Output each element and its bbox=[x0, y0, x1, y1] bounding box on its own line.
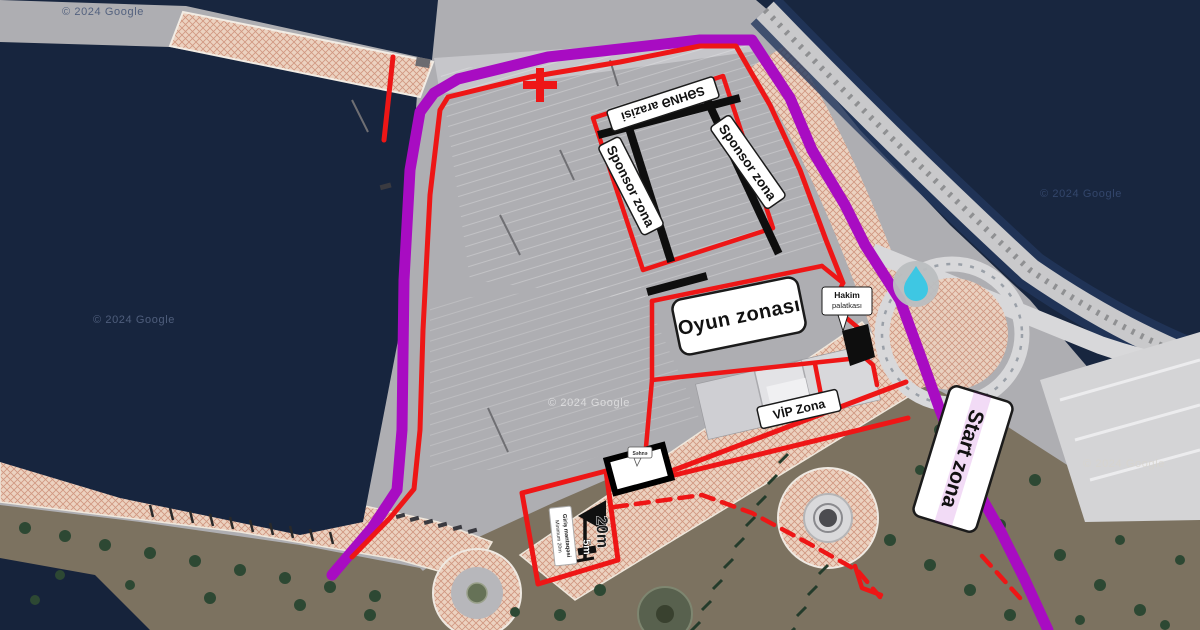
satellite-map: © 2024 Google © 2024 Google © 2024 Googl… bbox=[0, 0, 1200, 630]
google-watermark: © 2024 Google bbox=[1040, 188, 1122, 200]
stage-callout-text: Səhnə bbox=[632, 451, 647, 457]
water-area bbox=[0, 42, 417, 535]
google-watermark: © 2024 Google bbox=[1083, 458, 1165, 470]
google-watermark: © 2024 Google bbox=[62, 6, 144, 18]
event-layout-map: © 2024 Google © 2024 Google © 2024 Googl… bbox=[0, 0, 1200, 630]
garden-circle-center bbox=[656, 605, 674, 623]
judge-label-line2: palatkası bbox=[832, 301, 862, 310]
water-station bbox=[893, 261, 939, 307]
roundabout bbox=[433, 549, 521, 630]
judge-label-line1: Hakim bbox=[834, 290, 860, 300]
google-watermark: © 2024 Google bbox=[548, 397, 630, 409]
measure-20m-text: 20m bbox=[592, 516, 610, 549]
measure-5m-text: 5m bbox=[580, 539, 593, 555]
google-watermark: © 2024 Google bbox=[93, 314, 175, 326]
